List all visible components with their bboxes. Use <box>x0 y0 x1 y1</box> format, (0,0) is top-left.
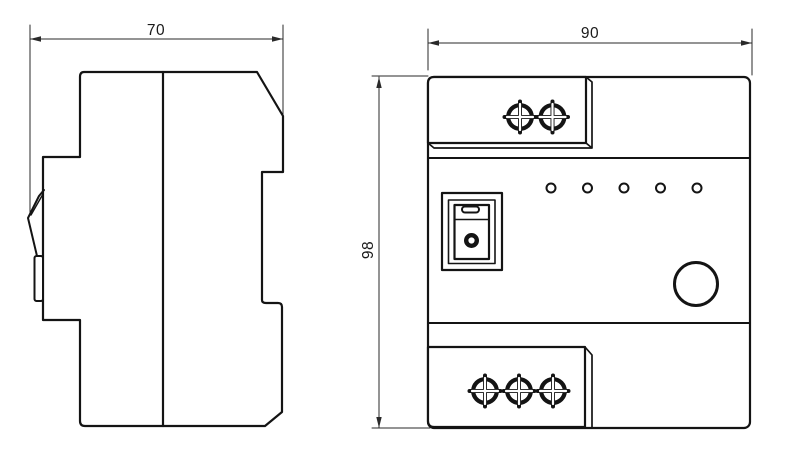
arrowhead-top-icon <box>376 77 381 88</box>
din-clip-flap-inner-line <box>31 194 43 215</box>
dimension-98 <box>372 76 430 428</box>
din-clip-strip <box>35 256 44 301</box>
led-indicator <box>656 184 665 193</box>
front-height-dimension-label: 98 <box>360 241 377 259</box>
arrowhead-left-icon <box>30 36 41 41</box>
led-indicator <box>583 184 592 193</box>
technical-drawing-page: 70 90 98 <box>0 0 800 452</box>
arrowhead-bottom-icon <box>376 417 381 428</box>
arrowhead-right-icon <box>741 40 752 45</box>
front-view: 90 98 <box>360 25 752 428</box>
arrowhead-left-icon <box>428 40 439 45</box>
side-width-dimension-label: 70 <box>147 22 165 39</box>
switch-on-marking-icon <box>462 207 479 213</box>
led-indicator <box>620 184 629 193</box>
power-switch[interactable] <box>442 193 502 270</box>
arrowhead-right-icon <box>272 36 283 41</box>
side-view: 70 <box>28 22 283 426</box>
technical-drawing-canvas: 70 90 98 <box>0 0 800 452</box>
front-width-dimension-label: 90 <box>581 25 599 42</box>
round-button[interactable] <box>675 263 718 306</box>
led-indicator <box>547 184 556 193</box>
bottom-terminal-screws <box>470 376 569 407</box>
led-indicator <box>693 184 702 193</box>
